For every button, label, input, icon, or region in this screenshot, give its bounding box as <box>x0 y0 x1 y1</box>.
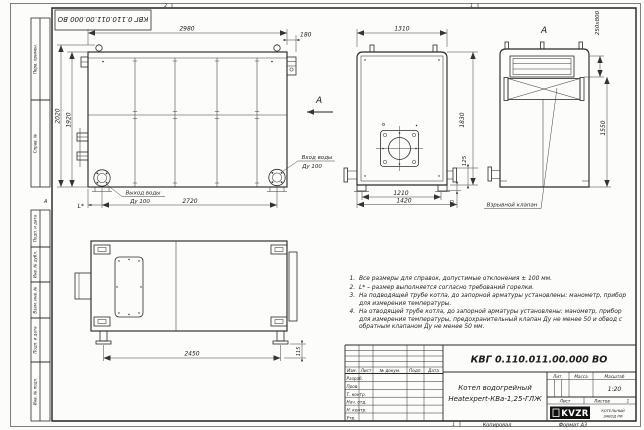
note-item: Все размеры для справок, допустимые откл… <box>357 276 629 284</box>
title-block: Изм. Лист № докум. Подп. Дата Разраб. Пр… <box>345 345 636 421</box>
zone-mark-top-left: 2 <box>164 3 167 9</box>
sheets-label: Листов <box>593 399 610 404</box>
view-a-label: А <box>540 26 547 36</box>
dim-180: 180 <box>300 32 312 39</box>
dimensions-view-a: 250х800 1550 <box>584 10 611 187</box>
margin-sprav-no: Справ. № <box>33 134 38 153</box>
company-logo: KVZR <box>550 407 590 420</box>
dim-2720: 2720 <box>182 198 197 205</box>
scale-label: Масштаб <box>605 374 625 379</box>
burner-flange <box>376 126 423 171</box>
view-front: 1310 1830 125 90 1210 1420 <box>344 26 478 209</box>
col-podp: Подп. <box>409 368 422 373</box>
lit-label: Лит. <box>552 374 563 379</box>
logo-caption-2: ЗАВОД РФ <box>603 415 622 419</box>
dim-2980: 2980 <box>179 26 194 33</box>
drawing-canvas: 2 1 1 Копировал Формат А3 Перв. примен. … <box>0 0 644 430</box>
fold-mark: А <box>43 199 48 205</box>
water-outlet-flange <box>94 170 110 186</box>
inspection-door <box>115 257 143 317</box>
dim-L: L* <box>78 203 84 210</box>
notes-list: Все размеры для справок, допустимые откл… <box>346 276 629 333</box>
product-name-1: Котел водогрейный <box>458 384 532 392</box>
dim-1210: 1210 <box>393 190 408 197</box>
col-doc: № докум. <box>379 368 401 373</box>
dim-2020: 2020 <box>55 108 62 123</box>
duct-stub-left <box>75 273 91 299</box>
dim-115: 115 <box>296 347 302 357</box>
dim-1830: 1830 <box>459 112 466 127</box>
top-stamp-number: КВГ 0.110.011.00.000 ВО <box>57 15 148 23</box>
note-item: На подводящей трубе котла, до запорной а… <box>357 293 629 308</box>
view-a-pipe-stub <box>488 167 500 181</box>
row-utv: Утв. <box>347 416 356 421</box>
view-side: 2980 180 2020 1920 2720 L* Выход воды Ду… <box>55 26 336 211</box>
margin-perv-primen: Перв. примен. <box>33 44 38 74</box>
sheets-value: 1 <box>627 399 630 404</box>
sheet-label: Лист <box>559 399 571 404</box>
lifting-lug-right <box>274 45 280 51</box>
air-duct-stub <box>287 57 296 75</box>
margin-column: Перв. примен. Справ. № Подп. и дата Инв.… <box>31 18 50 421</box>
logo-text: KVZR <box>561 409 589 419</box>
col-list: Лист <box>360 368 372 373</box>
legs <box>96 331 288 344</box>
stiffener-lines <box>135 58 257 187</box>
zone-mark-top-right: 1 <box>470 3 473 9</box>
scale-value: 1:20 <box>608 386 622 393</box>
dim-250x800: 250х800 <box>595 10 601 35</box>
flue-channel <box>289 252 297 321</box>
col-izm: Изм. <box>347 368 357 373</box>
inlet-label-1: Вход воды <box>302 155 333 161</box>
row-nach-otd: Нач. отд. <box>347 400 367 405</box>
feet <box>92 187 287 192</box>
dim-1310: 1310 <box>394 26 409 33</box>
explosion-valve-box <box>504 78 584 101</box>
margin-vzam-inv: Взам. инв. № <box>33 286 38 313</box>
view-arrow-label: А <box>315 96 322 106</box>
dim-125: 125 <box>462 155 468 166</box>
dim-1550: 1550 <box>600 120 607 135</box>
view-a: А 250х800 <box>484 10 611 208</box>
explosion-valve-label: Взрывной клапан <box>487 203 538 209</box>
view-direction-arrow: А <box>307 96 333 112</box>
row-razrab: Разраб. <box>347 376 363 381</box>
inlet-label-2: Ду 100 <box>301 164 322 170</box>
outlet-label-2: Ду 100 <box>129 199 150 205</box>
dim-90: 90 <box>450 200 456 206</box>
col-data: Дата <box>427 368 439 373</box>
product-name-2: Heatexpert-КВа-1,25-ГЛЖ <box>448 395 542 403</box>
engineering-drawing-sheet: 2 1 1 Копировал Формат А3 Перв. примен. … <box>0 0 644 430</box>
sight-port <box>382 123 384 125</box>
margin-inv-podl: Инв. № подл. <box>33 378 38 406</box>
margin-inv-dubl: Инв. № дубл. <box>33 251 38 278</box>
format-label: Формат А3 <box>559 422 587 428</box>
margin-podp-data-1: Подп. и дата <box>33 214 38 242</box>
dimensions-front: 1310 1830 125 90 1210 1420 <box>357 26 478 209</box>
dim-1920: 1920 <box>66 112 73 127</box>
stiffener-ticks <box>133 61 259 183</box>
row-t-kontr: Т. контр. <box>347 392 366 397</box>
logo-caption-1: КОТЕЛЬНЫЙ <box>601 408 625 413</box>
explosion-valve-callout: Взрывной клапан <box>484 88 557 209</box>
margin-podp-data-2: Подп. и дата <box>33 326 38 354</box>
doc-number: КВГ 0.110.011.00.000 ВО <box>471 355 608 366</box>
outlet-label-1: Выход воды <box>125 191 161 197</box>
inlet-callout: Вход воды Ду 100 <box>283 155 335 171</box>
door-hinges-left <box>77 128 88 167</box>
louver-grille <box>510 56 574 77</box>
lifting-lug-left <box>96 45 102 51</box>
copied-label: Копировал <box>483 422 512 428</box>
row-n-kontr: Н. контр. <box>347 408 367 413</box>
dim-1420: 1420 <box>396 198 411 205</box>
water-inlet-flange <box>269 169 285 185</box>
note-item: На отводящей трубе котла, до запорной ар… <box>357 309 629 332</box>
dim-2450: 2450 <box>184 351 199 358</box>
top-stamp: КВГ 0.110.011.00.000 ВО <box>55 10 151 30</box>
view-side-opposite: 2450 115 <box>75 241 306 361</box>
zone-mark-bottom: 1 <box>452 422 455 428</box>
note-item: L* – размер выполняется согласно требова… <box>357 285 629 293</box>
door-hinge-top <box>81 57 88 67</box>
row-prov: Пров. <box>347 384 359 389</box>
mass-label: Масса <box>574 374 588 379</box>
